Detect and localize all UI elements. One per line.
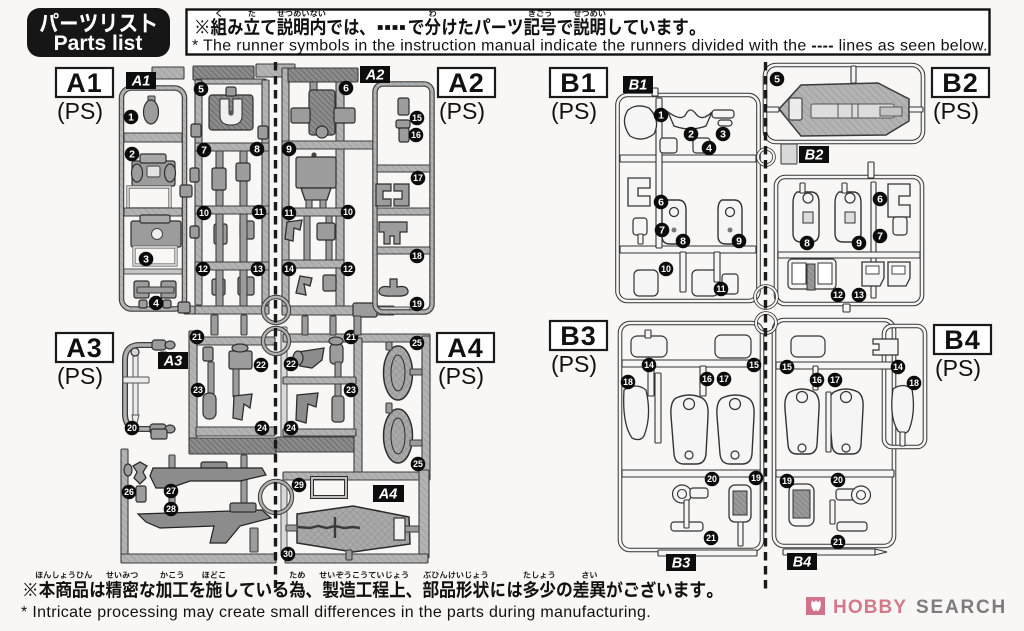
svg-text:15: 15 [749, 360, 759, 370]
svg-text:24: 24 [257, 423, 267, 433]
svg-text:10: 10 [661, 264, 671, 274]
svg-text:2: 2 [129, 149, 135, 161]
svg-text:16: 16 [411, 130, 421, 140]
svg-text:26: 26 [124, 487, 134, 497]
svg-text:21: 21 [192, 332, 202, 342]
svg-text:18: 18 [623, 377, 633, 387]
svg-text:6: 6 [658, 197, 664, 209]
svg-text:25: 25 [413, 459, 423, 469]
svg-text:16: 16 [702, 374, 712, 384]
svg-text:20: 20 [707, 474, 717, 484]
svg-text:25: 25 [412, 338, 422, 348]
svg-text:14: 14 [644, 360, 654, 370]
svg-text:A2: A2 [365, 68, 385, 84]
svg-text:15: 15 [412, 113, 422, 123]
svg-text:1: 1 [658, 110, 664, 122]
svg-text:19: 19 [412, 299, 422, 309]
svg-text:10: 10 [343, 207, 353, 217]
svg-text:14: 14 [893, 362, 903, 372]
svg-text:A1: A1 [66, 68, 103, 98]
svg-text:(PS): (PS) [935, 355, 981, 381]
svg-text:23: 23 [346, 385, 356, 395]
svg-text:A1: A1 [131, 74, 151, 90]
svg-text:20: 20 [127, 423, 137, 433]
svg-text:(PS): (PS) [551, 351, 597, 377]
svg-text:7: 7 [659, 225, 665, 237]
svg-text:12: 12 [343, 264, 353, 274]
svg-text:20: 20 [833, 475, 843, 485]
svg-text:B2: B2 [942, 68, 979, 98]
svg-text:12: 12 [833, 290, 843, 300]
svg-text:13: 13 [854, 290, 864, 300]
svg-text:21: 21 [833, 537, 843, 547]
svg-text:B4: B4 [793, 555, 812, 571]
svg-text:27: 27 [166, 486, 176, 496]
svg-text:15: 15 [782, 362, 792, 372]
svg-text:A3: A3 [66, 333, 103, 363]
svg-text:4: 4 [153, 298, 159, 310]
svg-text:17: 17 [719, 374, 729, 384]
svg-text:6: 6 [877, 194, 883, 206]
svg-text:11: 11 [716, 284, 725, 294]
svg-text:SEARCH: SEARCH [916, 597, 1007, 618]
svg-text:HOBBY: HOBBY [833, 597, 907, 618]
svg-text:2: 2 [688, 129, 694, 141]
svg-text:10: 10 [199, 208, 209, 218]
svg-text:8: 8 [254, 144, 260, 156]
svg-text:A2: A2 [448, 68, 485, 98]
svg-text:22: 22 [286, 359, 296, 369]
svg-text:B2: B2 [805, 148, 824, 164]
svg-text:(PS): (PS) [57, 98, 103, 124]
svg-text:24: 24 [286, 423, 296, 433]
svg-text:1: 1 [128, 112, 134, 124]
svg-text:19: 19 [751, 473, 761, 483]
svg-text:21: 21 [706, 533, 716, 543]
svg-text:28: 28 [166, 504, 176, 514]
svg-text:3: 3 [143, 254, 149, 266]
svg-text:17: 17 [830, 375, 840, 385]
svg-text:(PS): (PS) [438, 363, 484, 389]
svg-text:8: 8 [680, 236, 686, 248]
svg-text:22: 22 [256, 360, 266, 370]
svg-text:B3: B3 [560, 321, 597, 351]
svg-text:(PS): (PS) [551, 98, 597, 124]
svg-text:3: 3 [720, 129, 726, 141]
svg-text:11: 11 [254, 207, 263, 217]
svg-text:17: 17 [413, 173, 423, 183]
svg-text:8: 8 [804, 238, 810, 250]
svg-text:12: 12 [198, 264, 208, 274]
svg-text:14: 14 [284, 264, 294, 274]
svg-text:19: 19 [782, 476, 792, 486]
svg-text:16: 16 [812, 375, 822, 385]
svg-text:A3: A3 [163, 354, 183, 370]
svg-text:(PS): (PS) [933, 98, 979, 124]
svg-text:7: 7 [201, 145, 207, 157]
svg-text:29: 29 [294, 480, 304, 490]
svg-text:11: 11 [284, 208, 293, 218]
svg-text:9: 9 [856, 238, 862, 250]
svg-text:(PS): (PS) [439, 98, 485, 124]
svg-text:5: 5 [198, 84, 204, 96]
svg-text:A4: A4 [447, 333, 484, 363]
svg-text:9: 9 [736, 236, 742, 248]
svg-text:B4: B4 [944, 325, 981, 355]
svg-text:18: 18 [412, 251, 422, 261]
svg-text:* Intricate processing may cre: * Intricate processing may create small … [21, 604, 651, 621]
svg-text:18: 18 [909, 378, 919, 388]
svg-text:A4: A4 [378, 487, 398, 503]
svg-text:6: 6 [343, 83, 349, 95]
svg-text:9: 9 [286, 144, 292, 156]
svg-text:Parts list: Parts list [54, 32, 143, 55]
svg-text:B3: B3 [672, 556, 691, 572]
svg-text:23: 23 [193, 385, 203, 395]
svg-text:5: 5 [774, 74, 780, 86]
svg-text:4: 4 [706, 143, 712, 155]
svg-text:(PS): (PS) [57, 363, 103, 389]
svg-text:B1: B1 [629, 78, 648, 94]
svg-text:30: 30 [283, 549, 293, 559]
svg-text:* The runner symbols in the in: * The runner symbols in the instruction … [192, 38, 988, 55]
svg-text:13: 13 [253, 264, 263, 274]
svg-text:7: 7 [877, 231, 883, 243]
svg-text:B1: B1 [560, 68, 597, 98]
